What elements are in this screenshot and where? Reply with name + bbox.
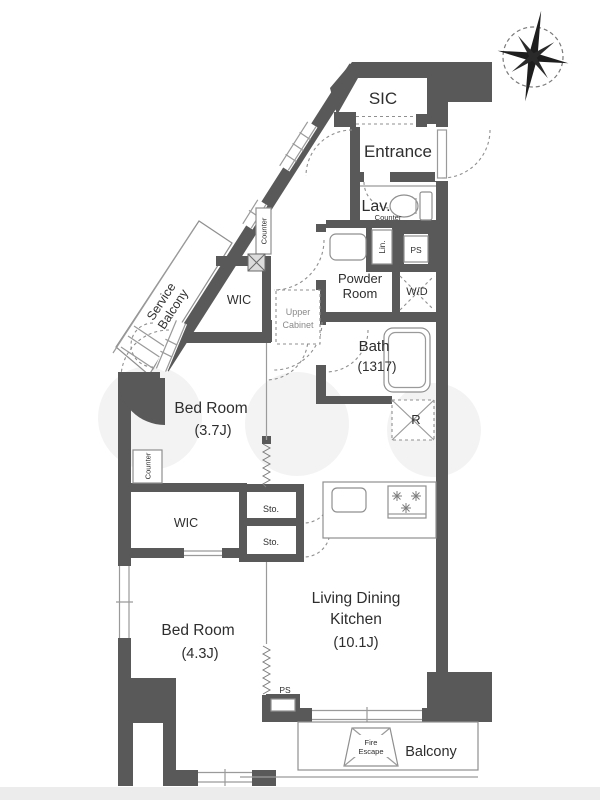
- label-upper-cabinet-2: Cabinet: [282, 320, 314, 330]
- room-label-bath: Bath: [359, 338, 390, 355]
- label-linen: Lin.: [378, 241, 387, 254]
- label-fridge: R: [411, 412, 420, 427]
- upper-cabinet-box: [276, 290, 320, 344]
- bottom-strip: [0, 787, 600, 800]
- room-label-bedroom2: Bed Room: [161, 622, 234, 639]
- label-lav-counter: Counter: [375, 213, 402, 222]
- washbasin-icon: [330, 234, 366, 260]
- room-label-wic-lower: WIC: [174, 516, 198, 530]
- label-bath-size: (1317): [357, 359, 396, 374]
- label-ps-upper: PS: [410, 245, 422, 255]
- label-counter-upper: Counter: [260, 217, 269, 244]
- label-upper-cabinet-1: Upper: [286, 307, 311, 317]
- room-label-wic-upper: WIC: [227, 293, 251, 307]
- room-label-sic: SIC: [369, 89, 397, 108]
- pipe-space-lower-box: [271, 699, 295, 711]
- room-label-entrance: Entrance: [364, 142, 432, 161]
- room-label-ldk-2: Kitchen: [330, 611, 382, 628]
- room-label-powder-1: Powder: [338, 271, 383, 286]
- kitchen-counter: [323, 482, 436, 538]
- label-washer-dryer: W/D: [406, 286, 427, 298]
- label-bedroom2-size: (4.3J): [181, 646, 218, 662]
- stove-icon: [388, 486, 426, 518]
- label-storage-upper: Sto.: [263, 504, 279, 514]
- label-ldk-size: (10.1J): [333, 635, 378, 651]
- label-storage-lower: Sto.: [263, 537, 279, 547]
- label-fire-escape-2: Escape: [358, 747, 383, 756]
- label-fire-escape-1: Fire: [365, 738, 378, 747]
- kitchen-sink-icon: [332, 488, 366, 512]
- room-label-bedroom1: Bed Room: [174, 400, 247, 417]
- meter-box-icon: [248, 254, 265, 271]
- label-bedroom1-size: (3.7J): [194, 423, 231, 439]
- floor-plan-canvas: SIC Entrance Lav. Counter Lin. PS Powder…: [0, 0, 600, 800]
- label-ps-lower: PS: [279, 685, 291, 695]
- label-counter-lower: Counter: [144, 452, 153, 479]
- room-label-balcony: Balcony: [405, 744, 457, 760]
- room-label-powder-2: Room: [343, 286, 378, 301]
- room-label-ldk-1: Living Dining: [312, 590, 401, 607]
